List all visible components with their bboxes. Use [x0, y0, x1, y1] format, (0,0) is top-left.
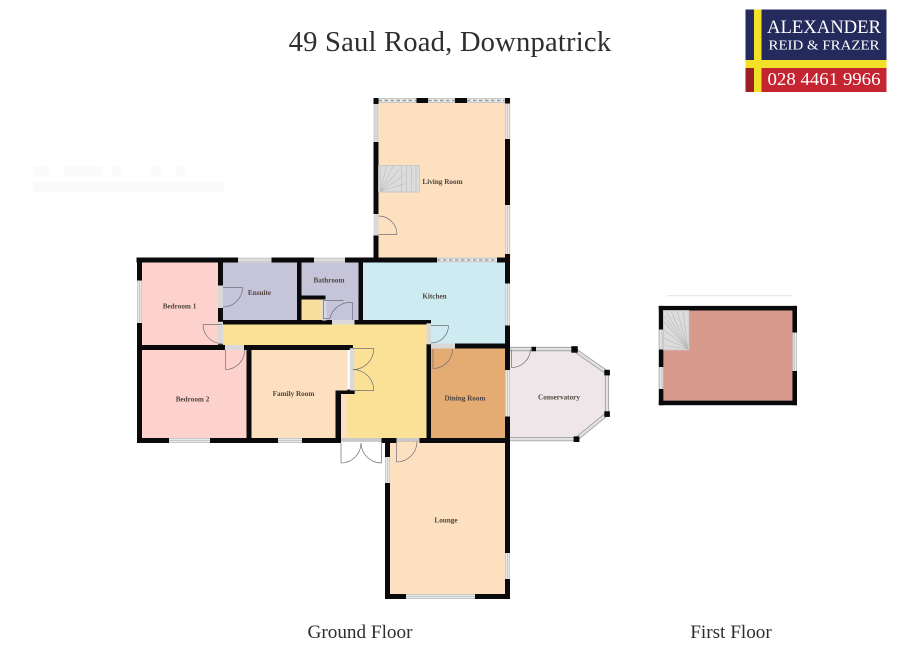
svg-text:Ensuite: Ensuite [248, 289, 271, 297]
svg-text:First Floor: First Floor [690, 622, 772, 643]
svg-text:Bedroom 1: Bedroom 1 [163, 303, 197, 311]
svg-text:ALEXANDER: ALEXANDER [767, 17, 881, 38]
svg-text:Conservatory: Conservatory [538, 394, 580, 402]
svg-text:49 Saul Road, Downpatrick: 49 Saul Road, Downpatrick [289, 27, 612, 58]
svg-text:Lounge: Lounge [434, 517, 457, 525]
svg-text:REID & FRAZER: REID & FRAZER [769, 39, 881, 54]
svg-text:Kitchen: Kitchen [422, 293, 446, 301]
svg-text:Dining Room: Dining Room [445, 395, 486, 403]
svg-text:Bedroom 2: Bedroom 2 [176, 396, 210, 404]
svg-text:Family Room: Family Room [273, 390, 315, 398]
svg-text:Living Room: Living Room [422, 178, 462, 186]
svg-text:Bathroom: Bathroom [313, 277, 344, 285]
svg-text:Ground Floor: Ground Floor [308, 622, 414, 643]
svg-text:028 4461 9966: 028 4461 9966 [768, 69, 881, 89]
